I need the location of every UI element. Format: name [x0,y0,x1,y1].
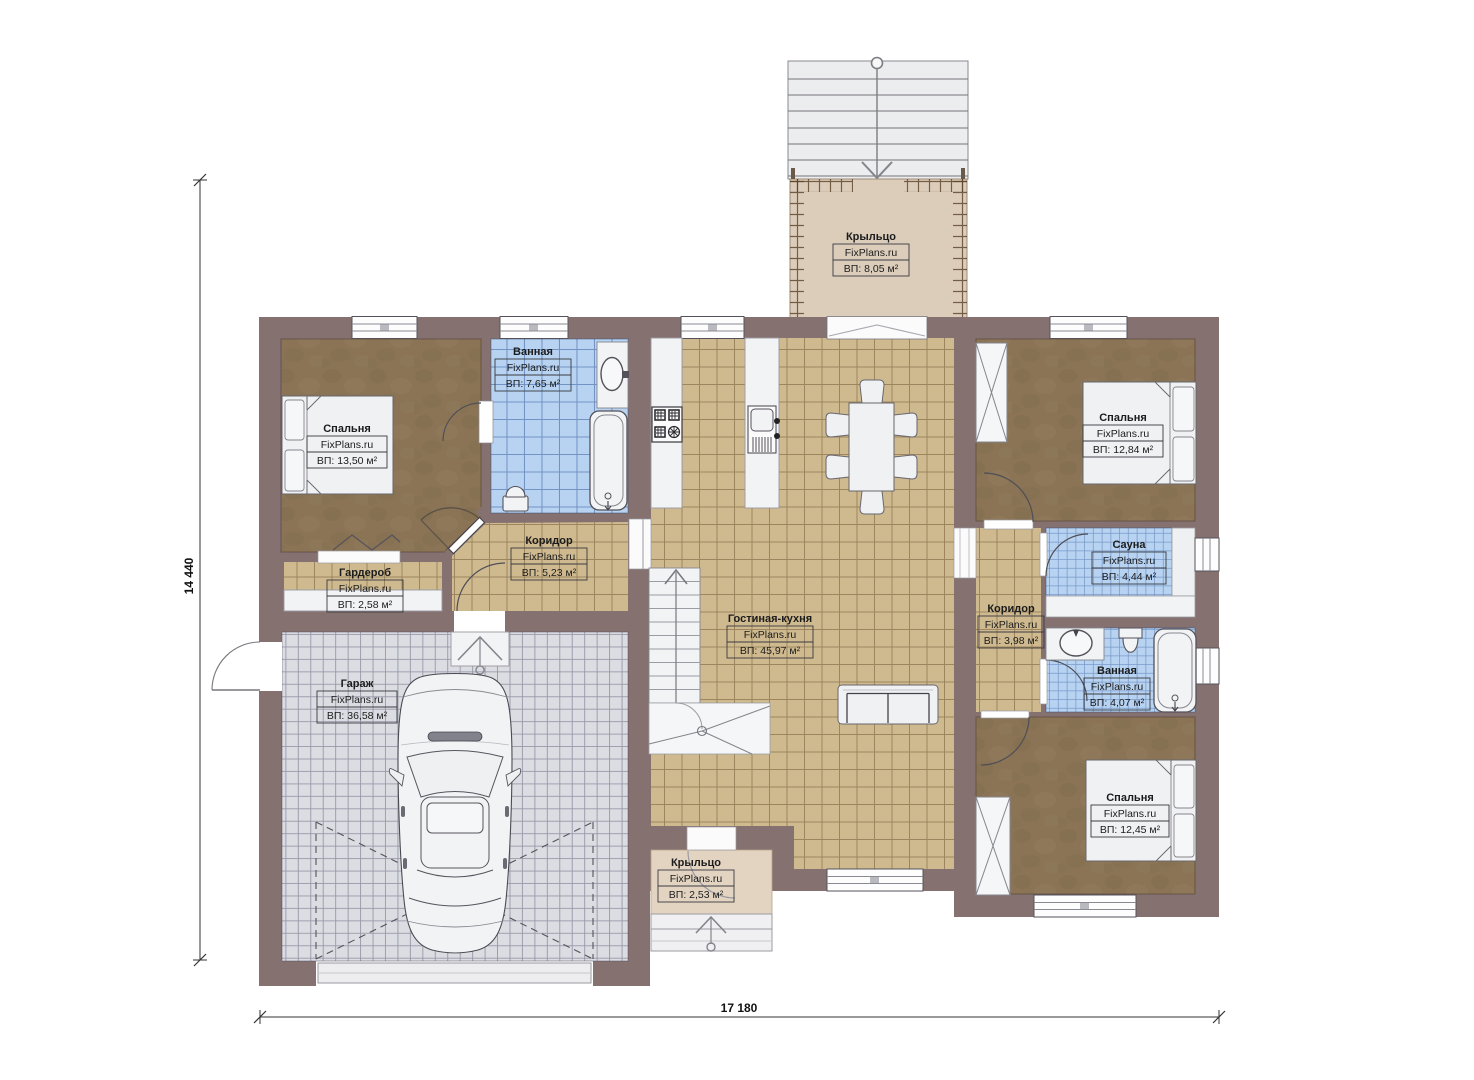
svg-text:FixPlans.ru: FixPlans.ru [744,629,797,641]
svg-text:ВП: 8,05 м²: ВП: 8,05 м² [844,263,899,275]
svg-text:Гостиная-кухня: Гостиная-кухня [728,613,812,625]
svg-text:FixPlans.ru: FixPlans.ru [1103,555,1156,567]
svg-text:Крыльцо: Крыльцо [671,857,721,869]
svg-text:Спальня: Спальня [1106,792,1154,804]
svg-text:Гараж: Гараж [341,678,374,690]
svg-text:FixPlans.ru: FixPlans.ru [339,583,392,595]
svg-text:FixPlans.ru: FixPlans.ru [1097,428,1150,440]
svg-text:ВП: 2,58 м²: ВП: 2,58 м² [338,599,393,611]
svg-text:FixPlans.ru: FixPlans.ru [985,619,1038,631]
svg-text:FixPlans.ru: FixPlans.ru [523,551,576,563]
svg-text:ВП: 7,65 м²: ВП: 7,65 м² [506,378,561,390]
svg-text:FixPlans.ru: FixPlans.ru [1104,808,1157,820]
svg-text:ВП: 45,97 м²: ВП: 45,97 м² [740,645,801,657]
svg-text:ВП: 36,58 м²: ВП: 36,58 м² [327,710,388,722]
svg-text:ВП: 3,98 м²: ВП: 3,98 м² [984,635,1039,647]
svg-text:Крыльцо: Крыльцо [846,231,896,243]
svg-text:FixPlans.ru: FixPlans.ru [321,439,374,451]
svg-text:Ванная: Ванная [1097,665,1137,677]
svg-text:Спальня: Спальня [323,423,371,435]
svg-text:ВП: 2,53 м²: ВП: 2,53 м² [669,889,724,901]
svg-text:17 180: 17 180 [721,1001,758,1015]
svg-text:ВП: 13,50 м²: ВП: 13,50 м² [317,455,378,467]
svg-text:FixPlans.ru: FixPlans.ru [845,247,898,259]
svg-text:Сауна: Сауна [1112,539,1146,551]
svg-text:Коридор: Коридор [987,603,1035,615]
svg-text:Коридор: Коридор [525,535,573,547]
svg-text:14 440: 14 440 [182,557,196,594]
svg-text:ВП: 4,44 м²: ВП: 4,44 м² [1102,571,1157,583]
svg-text:ВП: 4,07 м²: ВП: 4,07 м² [1090,697,1145,709]
svg-text:FixPlans.ru: FixPlans.ru [670,873,723,885]
svg-text:Ванная: Ванная [513,346,553,358]
svg-text:Гардероб: Гардероб [339,567,391,579]
svg-text:Спальня: Спальня [1099,412,1147,424]
svg-text:FixPlans.ru: FixPlans.ru [507,362,560,374]
svg-text:ВП: 12,45 м²: ВП: 12,45 м² [1100,824,1161,836]
svg-text:FixPlans.ru: FixPlans.ru [1091,681,1144,693]
svg-text:ВП: 5,23 м²: ВП: 5,23 м² [522,567,577,579]
svg-text:ВП: 12,84 м²: ВП: 12,84 м² [1093,444,1154,456]
svg-text:FixPlans.ru: FixPlans.ru [331,694,384,706]
